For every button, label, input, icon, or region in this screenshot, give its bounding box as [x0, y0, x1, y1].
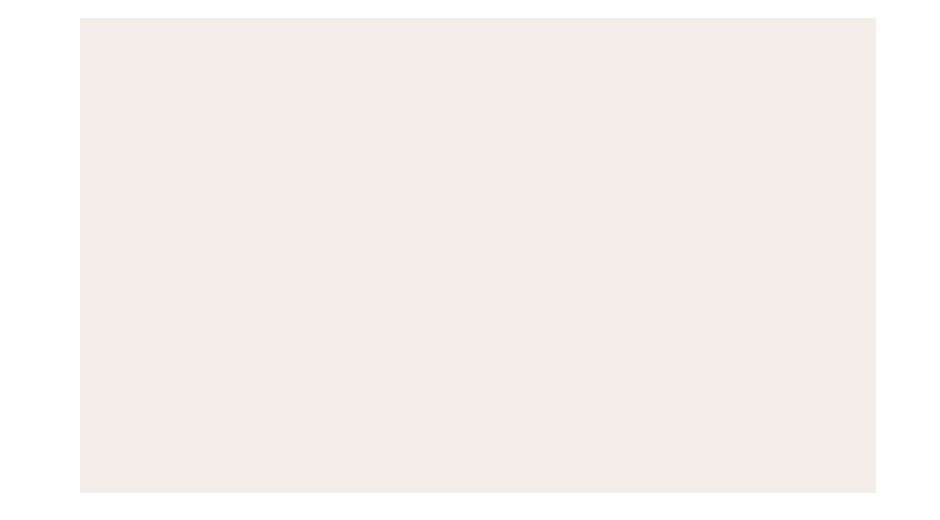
empty-panel	[80, 18, 876, 493]
